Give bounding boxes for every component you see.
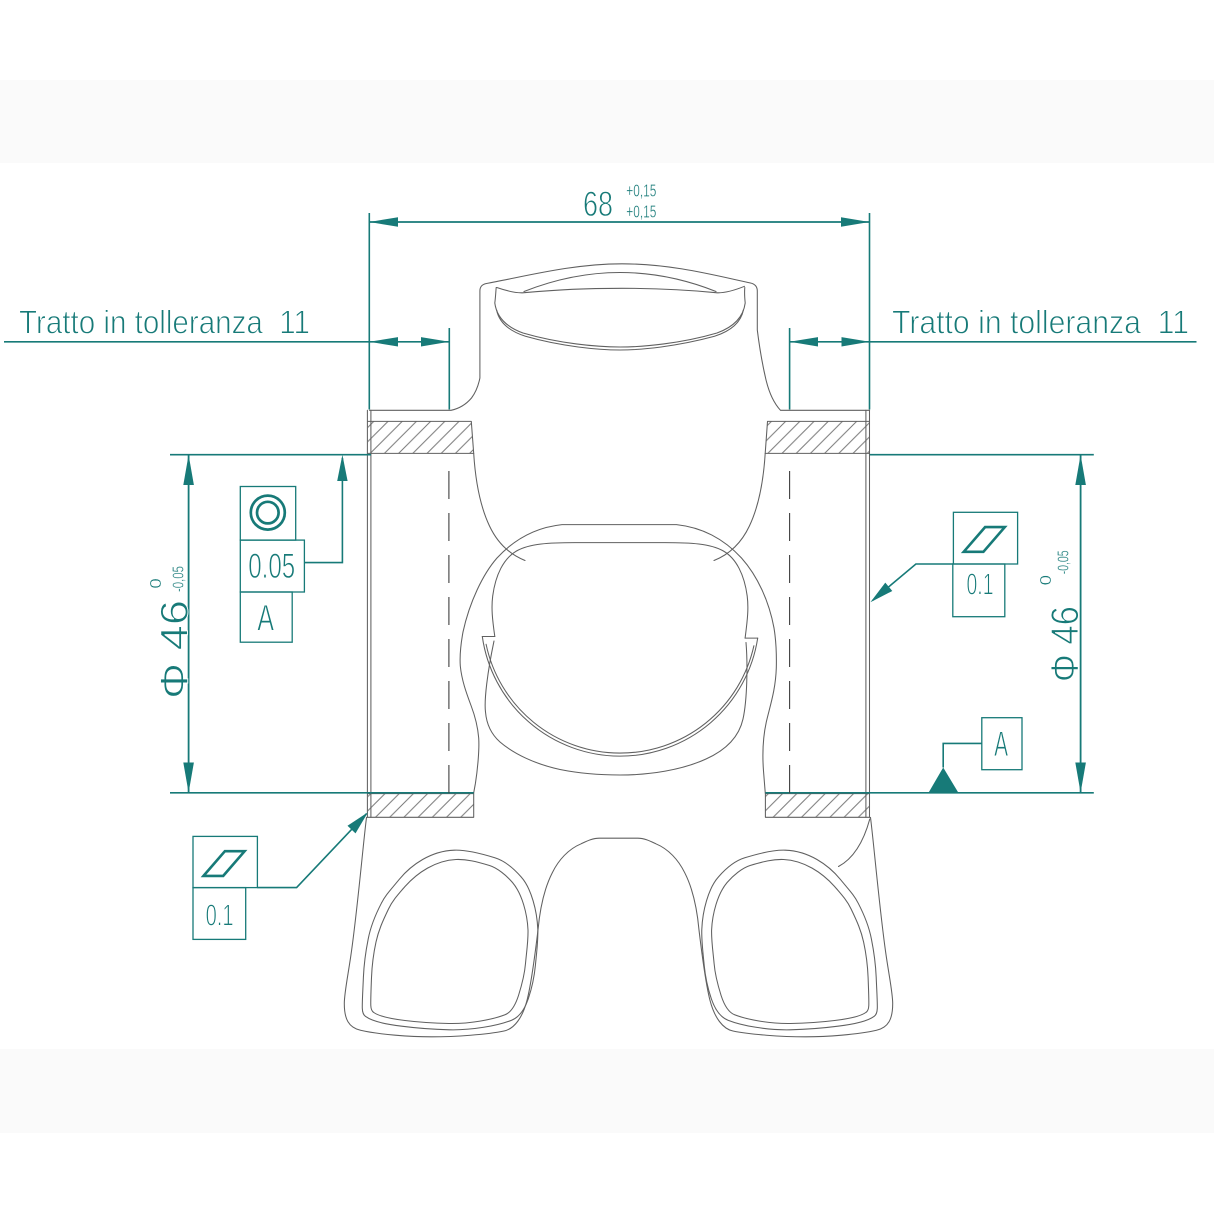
svg-text:Tratto in tolleranza 11: Tratto in tolleranza 11 xyxy=(892,304,1189,341)
svg-text:0.1: 0.1 xyxy=(967,567,994,602)
svg-text:A: A xyxy=(994,725,1008,764)
svg-text:0.05: 0.05 xyxy=(248,546,295,586)
svg-text:0.1: 0.1 xyxy=(206,898,234,933)
svg-text:68: 68 xyxy=(583,184,613,224)
svg-text:+0,15+0,15: +0,15+0,15 xyxy=(626,180,656,221)
svg-text:A: A xyxy=(257,596,274,638)
svg-text:Tratto in tolleranza 11: Tratto in tolleranza 11 xyxy=(19,304,310,341)
